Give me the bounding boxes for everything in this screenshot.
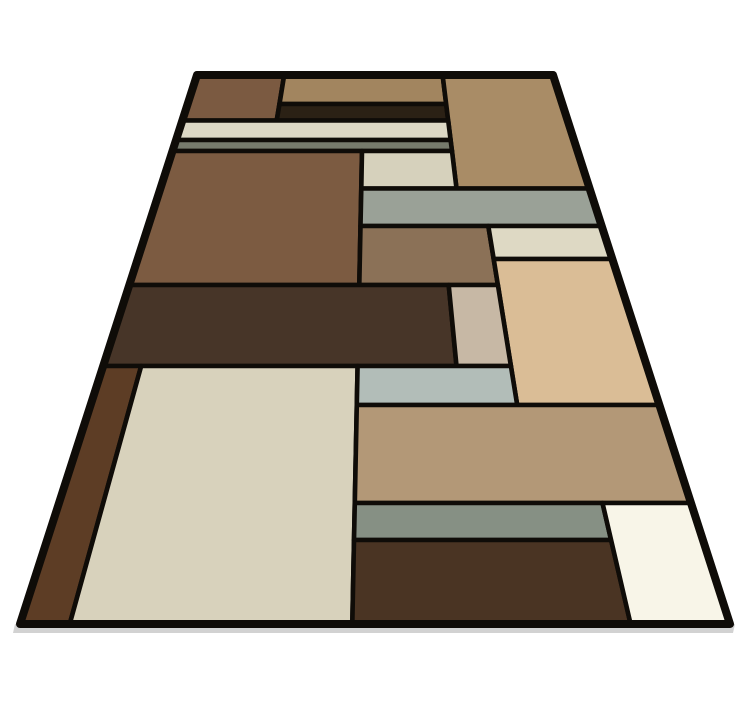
patch-blue-grey-band: [357, 366, 517, 405]
patch-mocha-block: [359, 226, 498, 285]
rug-illustration: [0, 0, 752, 703]
patch-sage-band: [354, 503, 611, 540]
patch-taupe-block: [449, 285, 511, 366]
patch-espresso-row: [103, 285, 456, 366]
patch-espresso-bottom: [352, 540, 630, 624]
rug-product-image: [0, 0, 752, 703]
patch-cream-block-upper: [361, 151, 456, 189]
patch-cream-strip: [176, 121, 451, 141]
patch-grey-green-band: [361, 189, 602, 227]
patch-light-tan-wide: [355, 405, 691, 503]
patch-top-middle-tan: [280, 75, 447, 104]
patch-dark-chocolate-strip: [277, 104, 449, 121]
patch-cream-block-right: [488, 226, 612, 259]
